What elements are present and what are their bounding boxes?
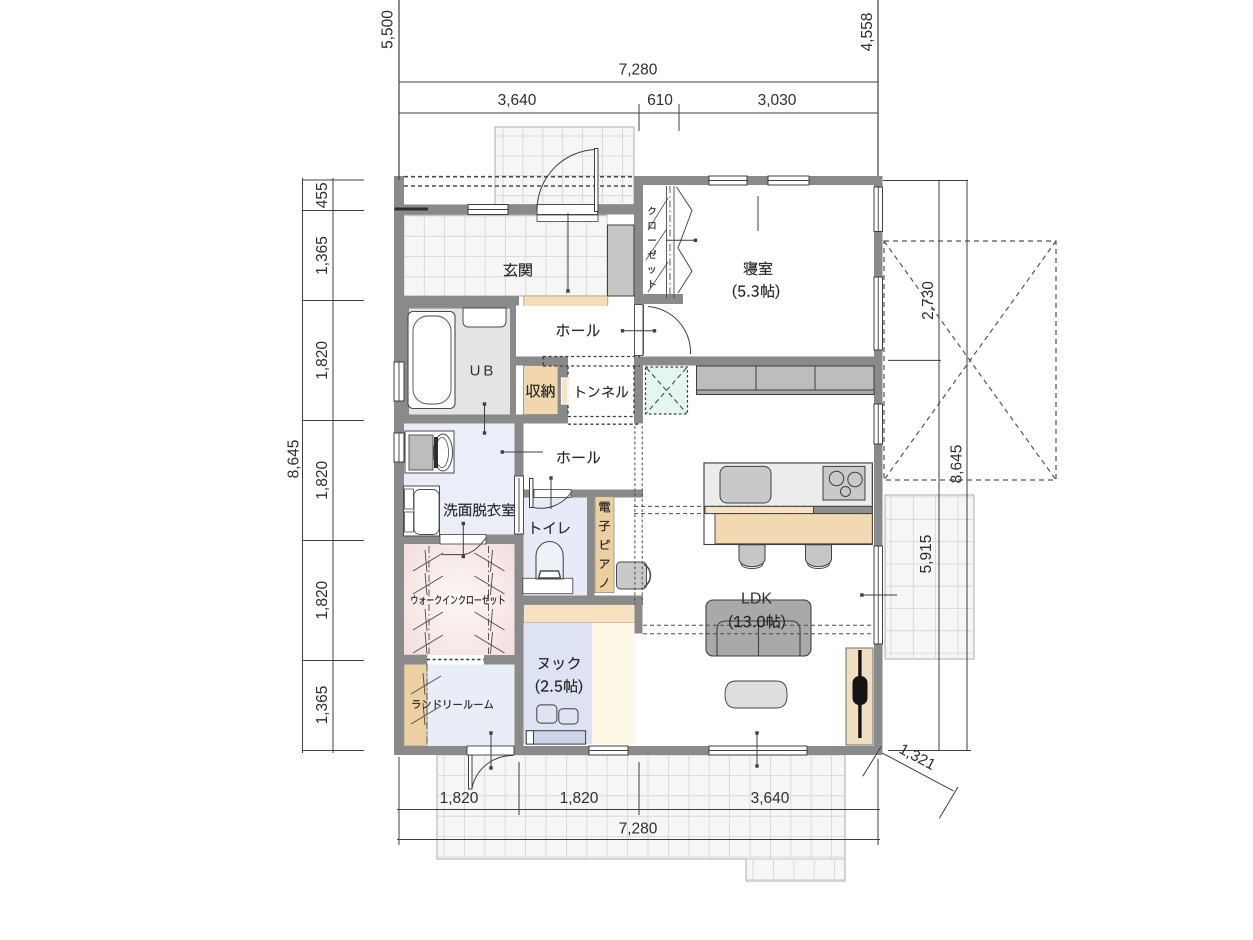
svg-text:610: 610 (647, 92, 673, 109)
svg-text:5,500: 5,500 (379, 10, 396, 49)
svg-text:4,558: 4,558 (859, 13, 876, 52)
svg-text:1,820: 1,820 (314, 341, 331, 380)
svg-text:1,365: 1,365 (314, 236, 331, 275)
svg-text:UB: UB (470, 363, 497, 380)
svg-text:1,820: 1,820 (314, 580, 331, 619)
svg-text:1,820: 1,820 (560, 790, 599, 807)
svg-text:3,030: 3,030 (758, 92, 797, 109)
svg-text:5,915: 5,915 (918, 535, 935, 574)
svg-text:2,730: 2,730 (920, 281, 937, 320)
svg-text:7,280: 7,280 (619, 61, 658, 78)
svg-text:7,280: 7,280 (619, 820, 658, 837)
svg-text:1,820: 1,820 (440, 790, 479, 807)
svg-text:3,640: 3,640 (498, 92, 537, 109)
svg-text:455: 455 (314, 182, 331, 208)
svg-text:8,645: 8,645 (285, 440, 302, 479)
svg-text:LDK: LDK (741, 591, 772, 608)
svg-text:8,645: 8,645 (948, 445, 965, 484)
svg-text:3,640: 3,640 (751, 790, 790, 807)
svg-text:1,365: 1,365 (314, 686, 331, 725)
svg-text:1,820: 1,820 (314, 461, 331, 500)
